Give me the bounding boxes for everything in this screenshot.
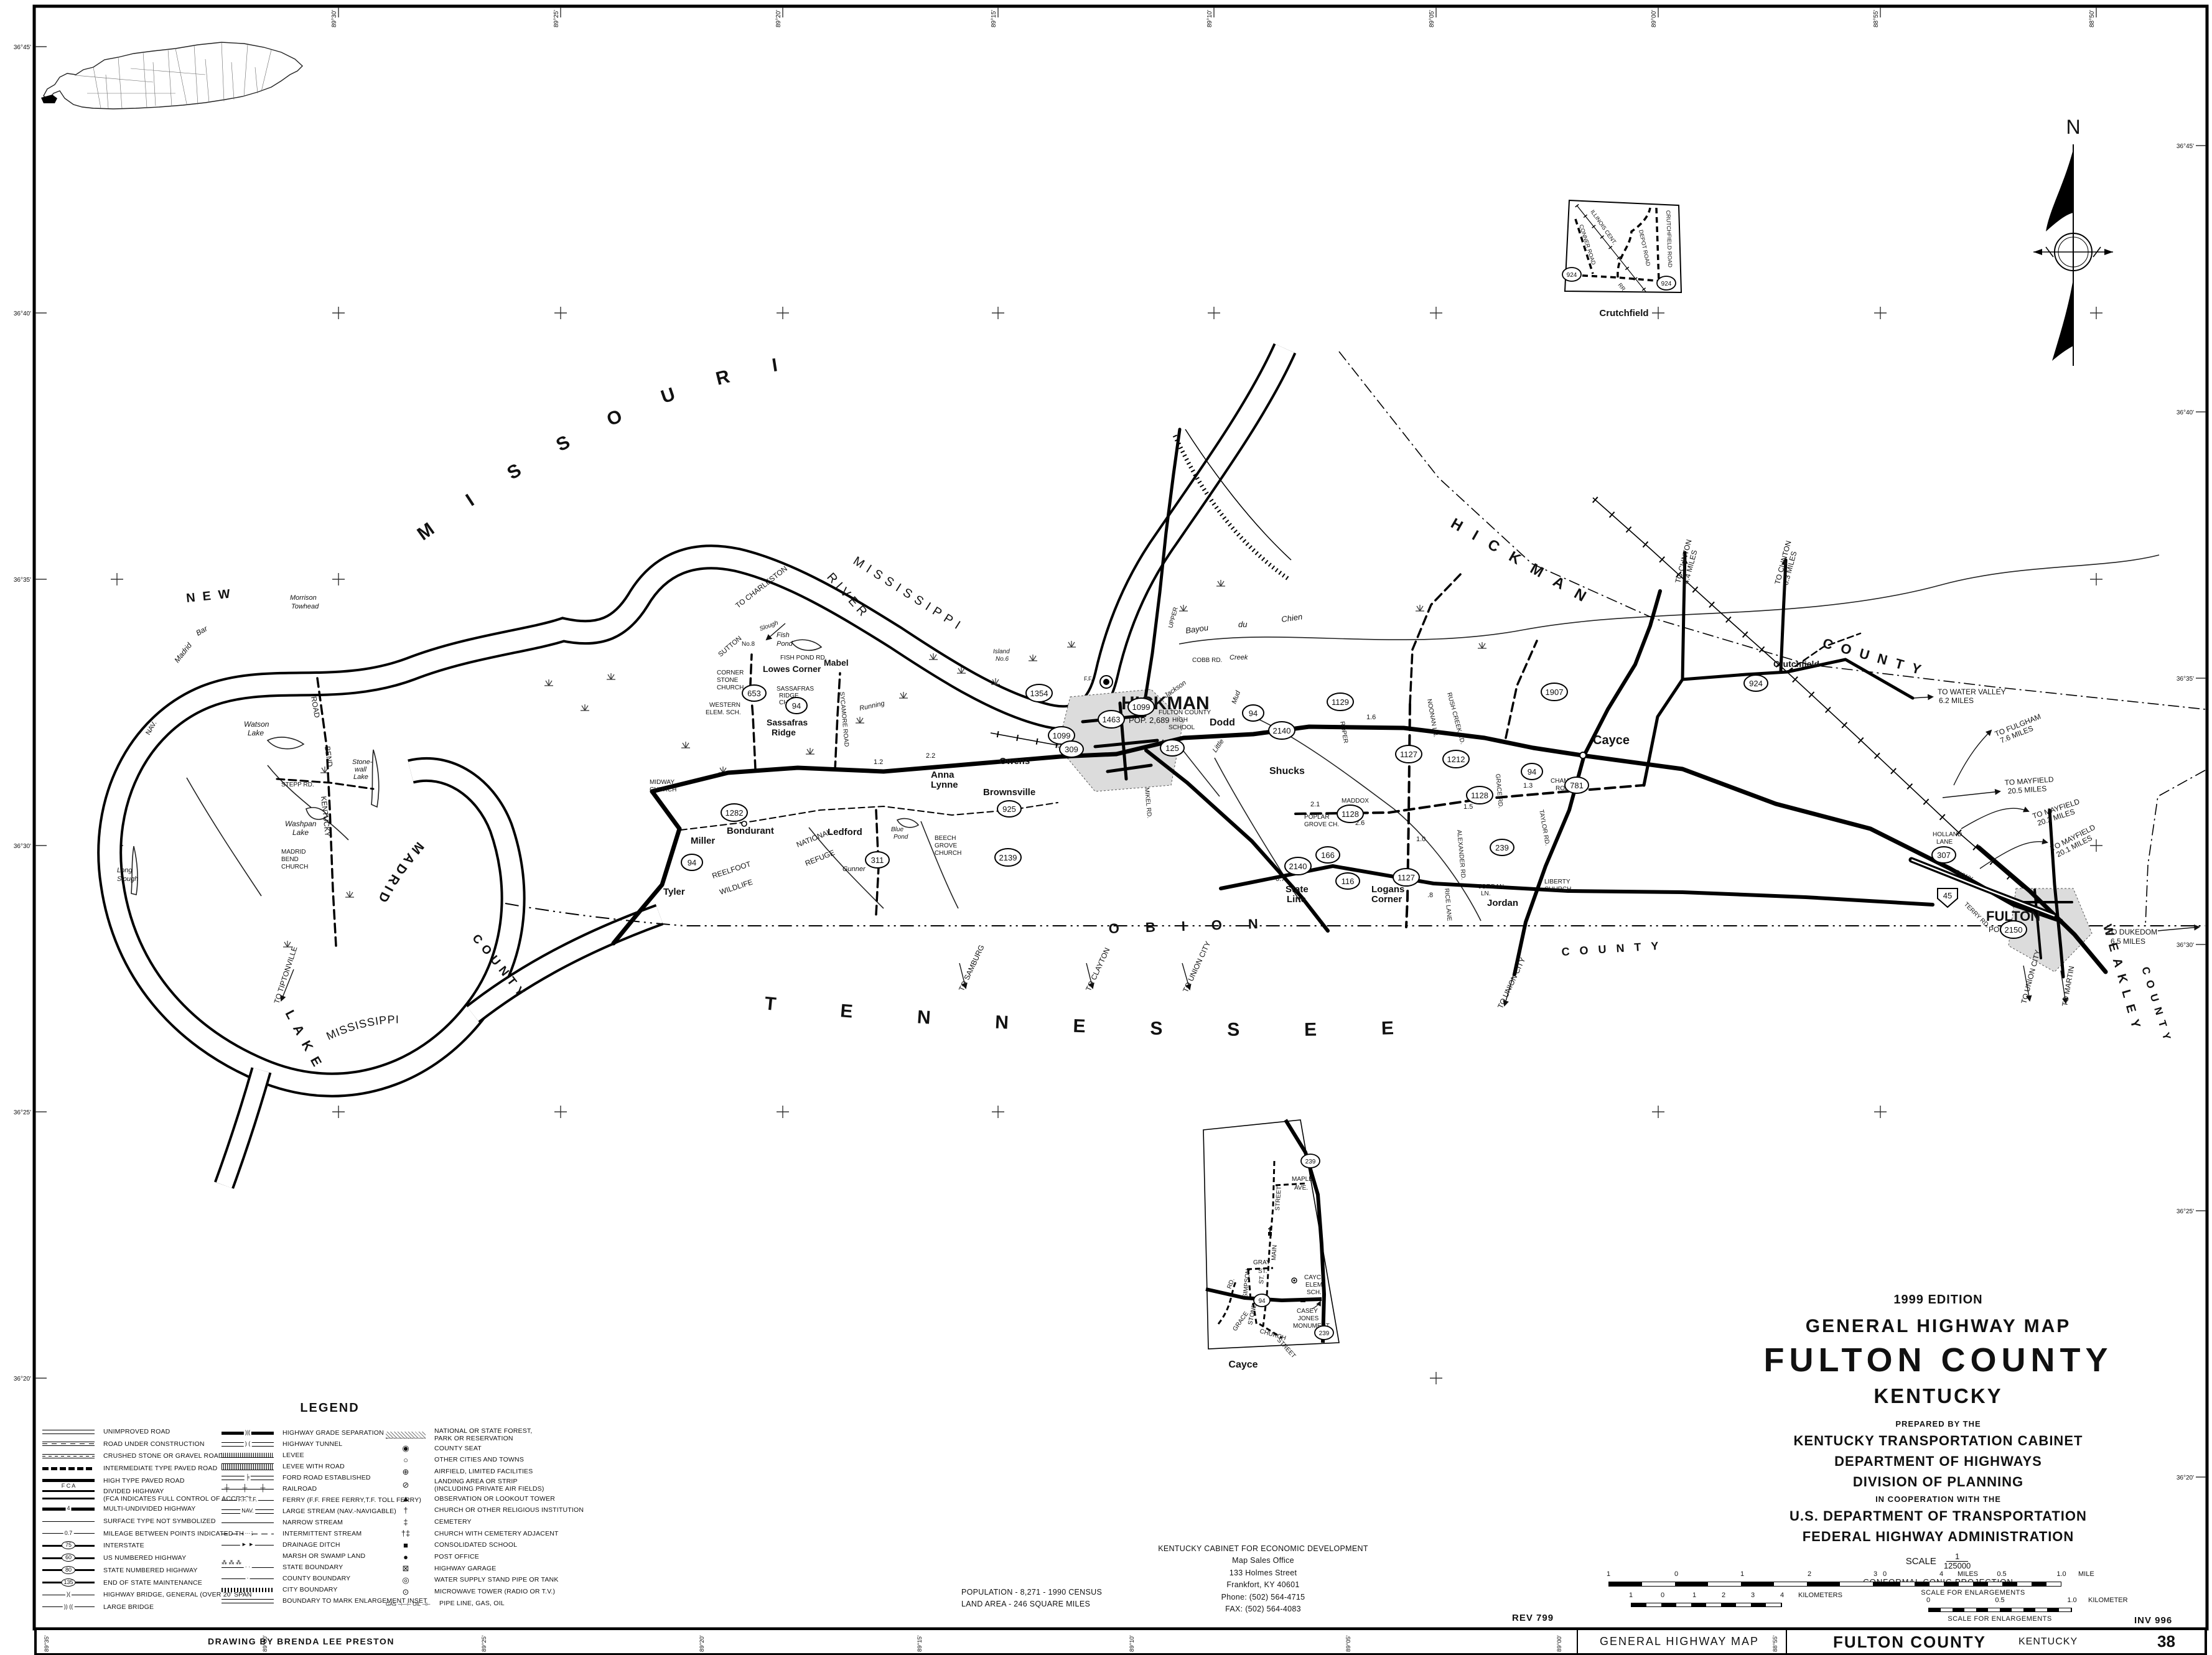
legend-symbol: ⊙ (386, 1586, 426, 1597)
legend-symbol (42, 1516, 95, 1527)
km-tick: 1 (1692, 1592, 1696, 1599)
legend-symbol-glyph: )( (42, 1595, 95, 1595)
town-mabel: Mabel (824, 658, 849, 668)
legend-symbol-text: · · (244, 1564, 252, 1570)
office-line-3: 133 Holmes Street (1145, 1567, 1381, 1579)
tick-top: 89°25' (553, 10, 560, 27)
label-mikel-rd: MIKEL RD. (1143, 787, 1152, 818)
legend-symbol: ) ( (222, 1438, 274, 1450)
legend-symbol-text: 4 (65, 1506, 71, 1511)
inset-caption-crutchfield: Crutchfield (1599, 308, 1648, 319)
label-watson: Watson (244, 720, 269, 729)
shield-94b: 94 (1521, 763, 1542, 780)
svg-text:924: 924 (1749, 679, 1763, 688)
poi-beech-grove2: GROVE (935, 842, 957, 849)
town-ledford: Ledford (828, 827, 862, 837)
legend-symbol-text: F.F. T.F. (237, 1497, 258, 1503)
destination-labels: TO CHARLESTON TO CLINTON4.4 MILES TO CLI… (273, 538, 2158, 1010)
legend-symbol: 80 (42, 1565, 95, 1576)
svg-text:45: 45 (1943, 891, 1952, 900)
svg-text:1128: 1128 (1342, 809, 1359, 819)
label-towhead: Towhead (291, 603, 319, 610)
poi-beech-grove3: CHURCH (935, 850, 961, 857)
legend-symbol-glyph (222, 1588, 274, 1592)
map-sheet: 89°30' 89°25' 89°20' 89°15' 89°10' 89°05… (0, 0, 2212, 1655)
legend-symbol-glyph (42, 1521, 95, 1522)
town-hickman-pop: POP. 2,689 (1129, 716, 1170, 725)
svg-text:20.5 MILES: 20.5 MILES (2007, 784, 2047, 795)
cayce-inset: MAPLE AVE. STREET MAIN GRAY ST. SIMPSON … (1203, 1120, 1339, 1370)
tick-left: 36°30' (14, 843, 31, 850)
label-long-slough2: Slough (117, 875, 138, 883)
tick-bottom: 88°55' (1772, 1635, 1779, 1652)
legend-label: UNIMPROVED ROAD (103, 1428, 170, 1435)
rev-number: REV 799 (1512, 1613, 1554, 1623)
legend-label: STATE BOUNDARY (282, 1564, 343, 1571)
label-sycamore-road: SYCAMORE ROAD (838, 691, 850, 747)
tick-bottom: 89°35' (44, 1635, 50, 1652)
legend-label: WATER SUPPLY STAND PIPE OR TANK (434, 1576, 559, 1583)
label-mississippi-bend: MISSISSIPPI (324, 1013, 399, 1042)
label-running: Running (859, 699, 885, 712)
office-line-4: Frankfort, KY 40601 (1145, 1579, 1381, 1591)
office-line-6: FAX: (502) 564-4083 (1145, 1603, 1381, 1615)
label-bend: BEND (323, 745, 335, 767)
legend-symbol: · · (222, 1562, 274, 1573)
svg-text:239: 239 (1495, 843, 1509, 852)
legend-symbol: F C A (42, 1489, 95, 1501)
bar-state-name: KENTUCKY (2018, 1636, 2078, 1648)
enl-mile-tick: 1.0 (2056, 1570, 2066, 1578)
km-tick: 2 (1722, 1592, 1725, 1599)
legend-symbol-glyph (222, 1453, 274, 1458)
legend-symbol-text: ■ (403, 1541, 408, 1550)
legend-symbol: ◎ (386, 1575, 426, 1586)
svg-text:TO DUKEDOM: TO DUKEDOM (2107, 928, 2157, 936)
cayce-maple: MAPLE (1292, 1176, 1313, 1183)
label-fish-pond2: Pond (777, 640, 793, 648)
legend-symbol: ► ► (222, 1539, 274, 1550)
cayce-main: MAIN (1271, 1245, 1279, 1261)
edition: 1999 EDITION (1661, 1293, 2212, 1307)
legend-row: ⊠ HIGHWAY GARAGE (386, 1563, 621, 1574)
svg-text:94: 94 (1528, 767, 1536, 776)
inset-shield-924: 924 (1562, 268, 1581, 281)
legend-symbol: F.F. T.F. (222, 1494, 274, 1506)
shield-1127b: 1127 (1393, 869, 1419, 886)
label-washpan-lake: Lake (292, 828, 309, 837)
legend-label: LEVEE (282, 1452, 304, 1459)
legend-symbol-glyph: ◉ (386, 1443, 426, 1453)
label-stonewall: Stone- (352, 758, 373, 766)
legend-symbol-glyph: †‡ (386, 1529, 426, 1538)
svg-text:1282: 1282 (726, 808, 744, 818)
svg-text:2140: 2140 (1273, 726, 1291, 735)
agency-highways: DEPARTMENT OF HIGHWAYS (1661, 1453, 2212, 1470)
legend-symbol-glyph: ⊠ (386, 1564, 426, 1573)
legend-symbol-glyph: ○ (386, 1455, 426, 1465)
legend-label: LEVEE WITH ROAD (282, 1463, 345, 1470)
label-tennessee: TENNESSEE (763, 993, 1458, 1040)
legend-symbol-text: ▲ (402, 1494, 410, 1503)
label-weakley-county: COUNTY (2139, 966, 2175, 1048)
legend-label: INTERSTATE (103, 1542, 144, 1549)
km-unit: KILOMETERS (1798, 1592, 1842, 1599)
north-label: N (2066, 116, 2080, 138)
svg-text:1463: 1463 (1103, 715, 1121, 724)
enl-caption-km: SCALE FOR ENLARGEMENTS (1948, 1615, 2051, 1623)
svg-text:1099: 1099 (1053, 731, 1071, 740)
legend-symbol-glyph: ► ► (222, 1545, 274, 1545)
miles-tick: 3 (1874, 1570, 1877, 1578)
cayce-shield-239: 239 (1301, 1154, 1320, 1168)
poi-western-school2: ELEM. SCH. (706, 709, 741, 716)
legend-symbol-text: ··· (244, 1531, 252, 1536)
tick-top: 89°05' (1429, 10, 1435, 27)
office-line-1: KENTUCKY CABINET FOR ECONOMIC DEVELOPMEN… (1145, 1543, 1381, 1555)
tick-bottom: 89°00' (1556, 1635, 1563, 1652)
scale-label: SCALE (1906, 1556, 1936, 1567)
legend-symbol-glyph: 0.7 (42, 1533, 95, 1534)
legend-symbol-glyph: ⊘ (386, 1480, 426, 1489)
town-sassafras-ridge2: Ridge (772, 727, 796, 737)
legend-symbol-glyph: † (386, 1506, 426, 1515)
svg-text:1128: 1128 (1471, 791, 1488, 800)
to-union-city-3: TO UNION CITY (1181, 940, 1212, 994)
label-rice-lane: RICE LANE (1443, 888, 1453, 921)
legend-label: PIPE LINE, GAS, OIL (439, 1600, 505, 1607)
poi-corner-stone2: STONE (717, 677, 739, 684)
legend-symbol: ■ (386, 1539, 426, 1550)
shield-311: 311 (866, 852, 889, 868)
legend-label: HIGHWAY GRADE SEPARATION (282, 1429, 384, 1437)
legend-symbol-text: 75 (62, 1541, 75, 1549)
tick-bottom: 89°20' (699, 1635, 706, 1652)
tick-right: 36°45' (2177, 143, 2194, 150)
town-bondurant: Bondurant (727, 826, 774, 836)
legend-symbol-glyph: ■ (386, 1541, 426, 1550)
svg-text:6.5 MILES: 6.5 MILES (2111, 937, 2145, 946)
state-boundary (505, 903, 2205, 926)
cayce-casey: CASEY (1297, 1308, 1318, 1315)
shield-1127: 1127 (1396, 745, 1422, 763)
label-free-ferry: F.F. (1084, 676, 1093, 682)
to-water-valley: TO WATER VALLEY6.2 MILES (1938, 688, 2006, 705)
label-roper: ROPER (1338, 721, 1349, 744)
town-crutchfield: Crutchfield (1773, 659, 1819, 669)
label-refuge: REFUGE (804, 848, 836, 868)
svg-text:924: 924 (1567, 272, 1577, 279)
legend-label: CONSOLIDATED SCHOOL (434, 1541, 517, 1549)
to-tiptonville: TO TIPTONVILLE (273, 945, 299, 1005)
shield-1354: 1354 (1026, 684, 1052, 702)
legend-symbol-glyph: ▲ (386, 1494, 426, 1503)
enl-mile-unit: MILE (2078, 1570, 2094, 1578)
legend-label: LANDING AREA OR STRIP (INCLUDING PRIVATE… (434, 1478, 544, 1493)
legend-symbol: GAS ⊣—⊢ OIL ⊣⊢ (386, 1598, 431, 1609)
label-reelfoot: REELFOOT (711, 859, 752, 880)
legend-symbol-text: ◉ (402, 1443, 409, 1453)
mileage: 2.2 (926, 752, 935, 760)
mileage: 1.0 (1416, 836, 1426, 843)
svg-text:2139: 2139 (999, 853, 1017, 862)
legend-symbol-text: )|( (244, 1430, 251, 1435)
shield-125: 125 (1160, 740, 1184, 756)
legend-symbol (222, 1517, 274, 1528)
label-stonewall2: wall (355, 766, 367, 773)
label-morrison: Morrison (290, 594, 317, 602)
poi-fulton-high3: SCHOOL (1169, 724, 1195, 731)
tick-right: 36°40' (2177, 409, 2194, 416)
legend-symbol-glyph (42, 1479, 95, 1482)
legend-symbol: 135 (42, 1577, 95, 1588)
legend-label: RAILROAD (282, 1485, 317, 1493)
label-jordan-ln2: LN. (1481, 890, 1491, 897)
label-watson-lake: Lake (248, 729, 264, 737)
legend-symbol-text: 60 (62, 1554, 75, 1562)
legend-symbol-text: GAS ⊣—⊢ OIL ⊣⊢ (386, 1601, 431, 1607)
shield-2140b: 2140 (1285, 857, 1311, 875)
km-tick: 3 (1751, 1592, 1755, 1599)
legend-symbol: ⊘ (386, 1480, 426, 1491)
label-maddox-rd: MADDOX (1342, 798, 1369, 804)
town-anna-lynne2: Lynne (931, 780, 958, 790)
legend-label: NARROW STREAM (282, 1519, 343, 1526)
town-brownsville: Brownsville (983, 787, 1035, 798)
label-blue-pond: Blue (891, 826, 903, 833)
label-stonewall3: Lake (353, 773, 368, 781)
svg-text:1354: 1354 (1030, 689, 1048, 698)
label-upper: UPPER (1167, 607, 1180, 629)
legend-row: ● POST OFFICE (386, 1551, 621, 1562)
shield-1907: 1907 (1541, 683, 1567, 701)
legend-symbol-text: · (246, 1575, 250, 1581)
label-wildlife: WILDLIFE (719, 877, 754, 896)
agency-cabinet: KENTUCKY TRANSPORTATION CABINET (1661, 1433, 2212, 1449)
mileage: 1.2 (874, 758, 883, 766)
county-title: FULTON COUNTY (1661, 1341, 2212, 1379)
legend-symbol: 60 (42, 1552, 95, 1564)
poi-corner-stone3: CHURCH (717, 684, 744, 691)
poi-poplar-grove: POPLAR (1304, 814, 1330, 821)
legend-symbol (42, 1463, 95, 1474)
label-hickman-county2: COUNTY (1821, 635, 1931, 680)
town-miller: Miller (691, 836, 715, 846)
svg-text:309: 309 (1065, 745, 1078, 754)
legend-label: US NUMBERED HIGHWAY (103, 1554, 186, 1562)
svg-text:1099: 1099 (1132, 702, 1150, 712)
legend-label: DRAINAGE DITCH (282, 1541, 340, 1549)
legend-symbol-text: )) (( (63, 1604, 75, 1610)
to-union-city-2: TO UNION CITY (1496, 956, 1527, 1010)
legend-symbol: NAV. (222, 1506, 274, 1517)
town-logans-corner2: Corner (1371, 894, 1402, 905)
legend-row: ■ CONSOLIDATED SCHOOL (386, 1539, 621, 1550)
shield-925: 925 (997, 801, 1021, 817)
svg-text:2150: 2150 (2005, 925, 2023, 935)
shield-2139: 2139 (995, 849, 1021, 866)
svg-text:125: 125 (1165, 744, 1179, 753)
legend-symbol-glyph (222, 1599, 274, 1603)
label-island-8: No.8 (742, 641, 755, 648)
legend-symbol-glyph (386, 1432, 426, 1438)
cayce-elem2: ELEM. (1305, 1282, 1324, 1289)
town-state-line2: Line (1287, 894, 1306, 905)
label-washpan: Washpan (285, 819, 317, 828)
shield-1128: 1128 (1467, 786, 1493, 804)
legend-symbol-glyph: F C A (42, 1490, 95, 1499)
legend-label: CITY BOUNDARY (282, 1586, 338, 1593)
legend-label: STATE NUMBERED HIGHWAY (103, 1567, 198, 1574)
label-holland-lane: HOLLAND (1933, 831, 1962, 838)
enl-km-bar (1928, 1608, 2072, 1612)
label-blue-pond2: Pond (894, 834, 908, 841)
tick-left: 36°25' (14, 1109, 31, 1116)
label-gunner: Gunner (842, 865, 866, 873)
tick-top: 88°50' (2089, 10, 2096, 27)
legend-label: COUNTY SEAT (434, 1445, 482, 1452)
poi-madrid-bend-church: MADRID (281, 849, 306, 855)
svg-text:239: 239 (1319, 1330, 1330, 1337)
label-taylor-rd: TAYLOR RD. (1538, 809, 1551, 847)
legend-symbol: ··· (222, 1528, 274, 1539)
poi-western-school: WESTERN (709, 702, 740, 709)
svg-text:94: 94 (688, 858, 696, 867)
legend-symbol-glyph: 4 (42, 1508, 95, 1511)
enl-mile-tick: 0.5 (1997, 1570, 2006, 1578)
tick-bottom: 89°25' (481, 1635, 488, 1652)
svg-text:1127: 1127 (1398, 873, 1415, 882)
mileage: 1.5 (1463, 803, 1473, 811)
legend-label: NATIONAL OR STATE FOREST, PARK OR RESERV… (434, 1427, 532, 1442)
shield-2150: 2150 (2000, 921, 2027, 938)
legend-symbol-text: 135 (61, 1578, 75, 1587)
label-chien: Chien (1281, 612, 1303, 624)
miles-tick: 4 (1939, 1570, 1943, 1578)
to-fulgham: TO FULGHAM7.6 MILES (1994, 712, 2045, 745)
label-island-6b: No.6 (996, 656, 1009, 663)
town-jordan: Jordan (1487, 898, 1518, 908)
enl-km-tick: 1.0 (2067, 1597, 2076, 1604)
legend-symbol-text: ╞ (245, 1475, 251, 1480)
cayce-shield-94: 94 (1254, 1294, 1270, 1307)
label-creek: Creek (1230, 654, 1248, 661)
tick-bottom: 89°05' (1345, 1635, 1352, 1652)
legend-symbol-glyph: 80 (42, 1569, 95, 1571)
town-shucks: Shucks (1269, 766, 1305, 776)
shield-1212: 1212 (1443, 750, 1469, 768)
legend-symbol: ○ (386, 1455, 426, 1466)
poi-corner-stone: CORNER (717, 669, 744, 676)
legend-symbol-glyph (42, 1467, 95, 1470)
legend-label: POST OFFICE (434, 1553, 479, 1560)
inv-number: INV 996 (2134, 1615, 2172, 1626)
legend-symbol-glyph (42, 1454, 95, 1458)
legend-label: END OF STATE MAINTENANCE (103, 1579, 202, 1587)
legend-label: HIGH TYPE PAVED ROAD (103, 1477, 185, 1485)
legend-row: ◉ COUNTY SEAT (386, 1443, 621, 1454)
bar-divider (1786, 1630, 1787, 1653)
km-tick: 4 (1780, 1592, 1784, 1599)
cayce-st: ST. (1258, 1275, 1266, 1285)
legend-symbol-text: †‡ (401, 1529, 410, 1538)
legend-row: ⊘ LANDING AREA OR STRIP (INCLUDING PRIVA… (386, 1478, 621, 1493)
poi-fulton-high: FULTON COUNTY (1159, 709, 1211, 716)
legend-symbol-glyph: NAV. (222, 1509, 274, 1514)
legend-symbol-text: ⊘ (403, 1480, 409, 1489)
legend-symbol-text: 0.7 (63, 1531, 74, 1536)
bar-divider (1577, 1630, 1578, 1653)
shield-239: 239 (1490, 839, 1514, 855)
town-logans-corner: Logans (1371, 884, 1404, 895)
tick-bottom: 89°15' (917, 1635, 923, 1652)
label-lake-county: LAKE (282, 1008, 329, 1076)
svg-text:925: 925 (1002, 804, 1016, 814)
miles-unit: MILES (1958, 1570, 1978, 1578)
state-title: KENTUCKY (1661, 1384, 2212, 1408)
enl-mile-bar (1885, 1582, 2061, 1587)
legend-symbol-text: ┼ ┼ ┼ (223, 1485, 273, 1492)
legend-symbol-glyph: ··· (222, 1534, 274, 1534)
shield-94c: 94 (786, 697, 807, 714)
poi-midway-church: MIDWAY (650, 779, 674, 786)
legend-label: OBSERVATION OR LOOKOUT TOWER (434, 1495, 555, 1503)
label-fish-pond: Fish (777, 632, 790, 639)
km-tick: 1 (1629, 1592, 1633, 1599)
scale-denominator: 125000 (1944, 1562, 1971, 1570)
legend-symbol-text: ○ (403, 1455, 408, 1465)
label-new: NEW (185, 586, 238, 605)
label-rush-creek-rd: RUSH CREEK RD. (1445, 692, 1466, 745)
legend-label: CHURCH WITH CEMETERY ADJACENT (434, 1530, 559, 1537)
tick-top: 89°10' (1206, 10, 1213, 27)
label-madrid-bar: Madrid (172, 641, 194, 664)
legend-label: CRUSHED STONE OR GRAVEL ROAD (103, 1452, 223, 1460)
agency-fhwa: FEDERAL HIGHWAY ADMINISTRATION (1661, 1529, 2212, 1545)
legend-symbol: ◉ (386, 1443, 426, 1454)
legend-row: ⊕ AIRFIELD, LIMITED FACILITIES (386, 1466, 621, 1477)
shield-1282: 1282 (721, 804, 747, 821)
shield-us45: 45 (1938, 888, 1958, 907)
legend-symbol-glyph (222, 1522, 274, 1523)
legend-row: ⊙ MICROWAVE TOWER (RADIO OR T.V.) (386, 1586, 621, 1597)
legend-symbol-text: ‡ (403, 1517, 408, 1527)
miles-tick: 2 (1808, 1570, 1811, 1578)
drawing-credit: DRAWING BY BRENDA LEE PRESTON (208, 1636, 394, 1646)
legend-symbol: )) (( (42, 1601, 95, 1613)
legend: LEGEND UNIMPROVED ROAD ROAD UNDER CONSTR… (37, 1394, 622, 1624)
legend-label: MULTI-UNDIVIDED HIGHWAY (103, 1505, 196, 1513)
cayce-elem: CAYCE (1304, 1274, 1325, 1281)
to-clinton-63: TO CLINTON6.3 MILES (1773, 539, 1801, 587)
north-arrow: N (2033, 116, 2113, 366)
prepared-by: PREPARED BY THE (1661, 1419, 2212, 1429)
label-du: du (1238, 620, 1247, 629)
legend-symbol-text: 80 (62, 1566, 75, 1574)
legend-symbol: )( (42, 1589, 95, 1600)
label-alexander-rd: ALEXANDER RD. (1455, 829, 1467, 880)
legend-label: INTERMEDIATE TYPE PAVED ROAD (103, 1465, 217, 1472)
legend-symbol-text: † (403, 1506, 408, 1515)
legend-title: LEGEND (243, 1401, 417, 1415)
label-fish-pond-rd: FISH POND RD. (780, 655, 826, 661)
legend-label: ROAD UNDER CONSTRUCTION (103, 1440, 205, 1448)
legend-symbol (386, 1429, 426, 1440)
label-missouri: MISSOURI (414, 348, 822, 544)
label-mud: Mud (1231, 689, 1243, 705)
town-tyler: Tyler (663, 887, 685, 897)
tick-bottom: 89°10' (1129, 1635, 1136, 1652)
